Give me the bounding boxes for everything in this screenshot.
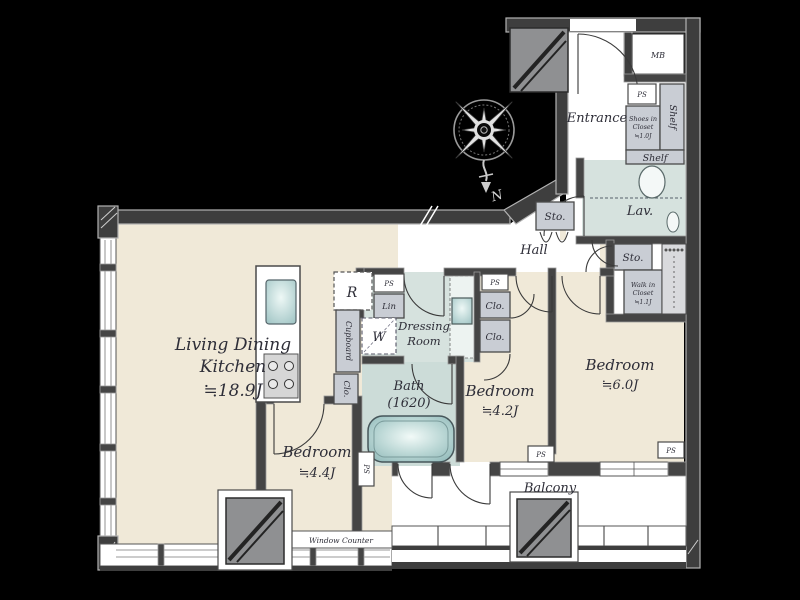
ps-label-bed2: PS xyxy=(489,279,500,287)
balcony-label: Balcony xyxy=(523,481,577,496)
entrance-door-opening xyxy=(570,19,636,31)
window-mullion xyxy=(100,444,116,451)
wall-sto-left xyxy=(606,240,614,316)
storage-hall-label: Sto. xyxy=(545,211,566,223)
hanger-mark xyxy=(673,249,676,252)
window-mullion xyxy=(100,498,116,505)
hanger-mark xyxy=(677,249,680,252)
meter-box-label: MB xyxy=(650,51,665,60)
hanger-mark xyxy=(681,249,684,252)
window-mullion xyxy=(100,264,116,271)
lav-oval-fixture xyxy=(667,212,679,232)
bedroom-small-label: Bedroom xyxy=(282,443,352,461)
closet-b2-upper-label: Clo. xyxy=(486,301,505,312)
window-mullion xyxy=(158,544,164,566)
wall-bath-east xyxy=(456,356,464,462)
wall-lav-left xyxy=(576,158,584,198)
lav-basin xyxy=(639,166,665,198)
wic-pipe-strip xyxy=(662,244,686,314)
wic-line2: Closet xyxy=(633,289,654,297)
stove-burner xyxy=(285,380,294,389)
hanger-mark xyxy=(669,249,672,252)
wall-below-mb xyxy=(624,74,686,82)
closet-b2-lower-label: Clo. xyxy=(486,332,505,343)
refrigerator-label: R xyxy=(346,285,358,301)
floor-plan-svg: Living Dining Kitchen ≒18.9J Bedroom ≒4.… xyxy=(0,0,800,600)
lavatory-label: Lav. xyxy=(626,204,653,219)
wall-balcony-b xyxy=(432,462,450,476)
bedroom-small-size: ≒4.4J xyxy=(299,466,337,481)
ldk-size: ≒18.9J xyxy=(204,381,264,401)
outer-edge-balcony xyxy=(392,562,686,569)
wic-line3: ≒1.1J xyxy=(635,299,653,306)
washstand-mirror xyxy=(452,298,472,324)
window-mullion xyxy=(100,386,116,393)
washer-label: W xyxy=(372,330,387,345)
bathtub xyxy=(368,416,454,462)
ldk-label-line1: Living Dining xyxy=(174,335,291,355)
wall-bed1-west xyxy=(256,400,266,498)
wic-line1: Walk in xyxy=(631,281,655,289)
hall-label: Hall xyxy=(519,243,547,258)
kitchen-stove xyxy=(264,354,298,398)
bedroom-mid-label: Bedroom xyxy=(465,382,535,400)
ldk-label-line2: Kitchen xyxy=(199,357,266,377)
linen-label: Lin xyxy=(381,302,396,312)
ps-label-entrance: PS xyxy=(636,91,647,99)
kitchen-sink xyxy=(266,280,296,324)
shoes-closet-line2: Closet xyxy=(633,123,654,131)
storage-right-label: Sto. xyxy=(623,252,644,264)
wall-mb-stub xyxy=(624,32,632,76)
stove-burner xyxy=(269,362,278,371)
entrance-label: Entrance xyxy=(566,111,628,126)
bath-label: Bath xyxy=(393,379,425,394)
compass-hub-center xyxy=(481,127,487,133)
shelf-lower-label: Shelf xyxy=(643,153,669,164)
window-mullion xyxy=(100,330,116,337)
wall-corridor-left xyxy=(556,90,568,194)
wall-washstand-east xyxy=(474,272,480,362)
shelf-right-label: Shelf xyxy=(667,105,678,131)
bedroom-mid-size: ≒4.2J xyxy=(482,404,520,419)
ps-label-bottom-right: PS xyxy=(665,447,676,455)
stove-burner xyxy=(269,380,278,389)
hanger-mark xyxy=(665,249,668,252)
ps-label-kitchen: PS xyxy=(383,280,394,288)
wall-balcony-c xyxy=(490,462,500,476)
bedroom-large-label: Bedroom xyxy=(585,356,655,374)
closet-kitchen-label: Clo. xyxy=(341,381,351,398)
wall-balcony-d xyxy=(548,462,600,476)
ps-label-bottom-mid: PS xyxy=(535,451,546,459)
wall-wic-bottom xyxy=(606,314,686,322)
bath-size: (1620) xyxy=(387,396,430,411)
floor-plan-stage: Living Dining Kitchen ≒18.9J Bedroom ≒4.… xyxy=(0,0,800,600)
window-counter-label: Window Counter xyxy=(309,536,373,545)
cupboard-label: Cupboard xyxy=(344,321,353,361)
wall-right xyxy=(686,18,700,568)
wall-ldk-top xyxy=(100,210,510,224)
dressing-label-line2: Room xyxy=(406,334,441,348)
wall-bath-north-a xyxy=(362,356,404,364)
wall-hall-south-c xyxy=(600,268,614,276)
bedroom-large-size: ≒6.0J xyxy=(602,378,640,393)
ps-label-mid-vertical: PS xyxy=(362,463,370,474)
dressing-label-line1: Dressing xyxy=(397,319,450,333)
shoes-closet-line1: Shoes in xyxy=(629,115,657,123)
stove-burner xyxy=(285,362,294,371)
wall-balcony-e xyxy=(668,462,686,476)
wall-balcony-a xyxy=(392,462,398,476)
shoes-closet-line3: ≒1.0J xyxy=(635,133,653,140)
